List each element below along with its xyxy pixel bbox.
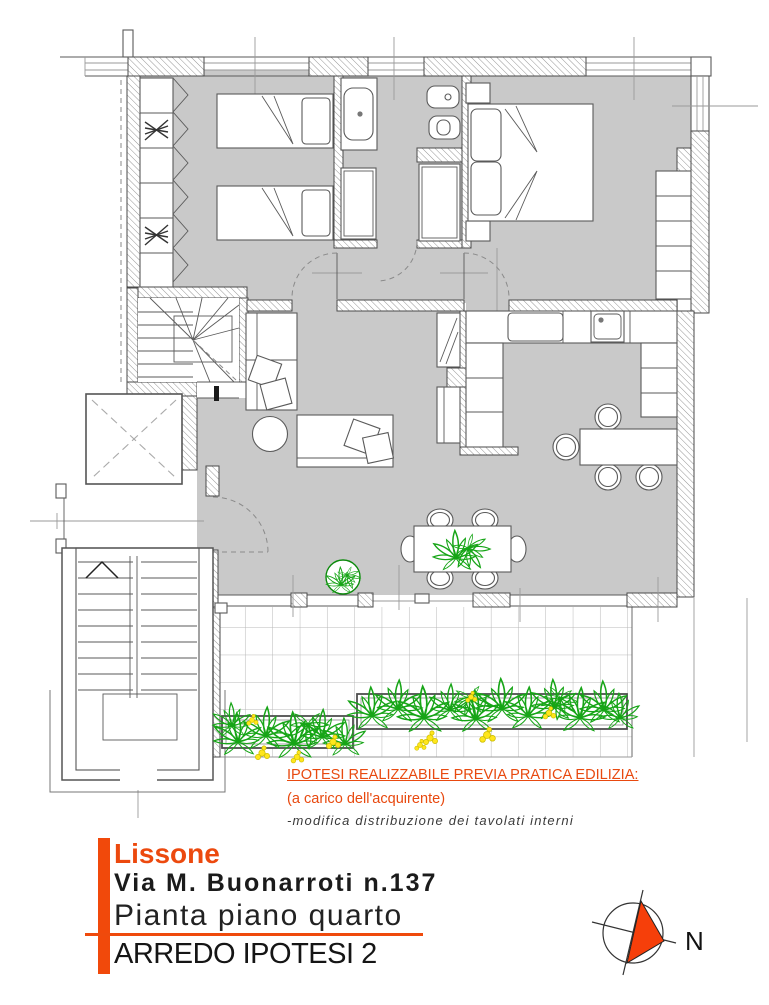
- nightstand: [466, 221, 490, 241]
- stairwell-opening: [120, 766, 157, 782]
- pillow: [302, 98, 330, 144]
- single-bed-1: [217, 94, 333, 148]
- toilet: [429, 116, 460, 139]
- section-mark: [214, 386, 219, 401]
- chimney-stub: [123, 30, 133, 57]
- single-bed-2: [217, 186, 333, 240]
- floor-plan-page: IPOTESI REALIZZABILE PREVIA PRATICA EDIL…: [0, 0, 769, 1005]
- window: [691, 76, 709, 133]
- pillow: [302, 190, 330, 236]
- sliding-door-leaf: [415, 594, 429, 603]
- pillow: [471, 162, 501, 215]
- north-wall: [60, 30, 711, 76]
- washbasin: [341, 78, 377, 150]
- title-city: Lissone: [114, 838, 220, 870]
- title-accent-bar: [98, 838, 110, 974]
- cushion: [363, 433, 394, 464]
- annotation-line-1: IPOTESI REALIZZABILE PREVIA PRATICA EDIL…: [287, 766, 638, 783]
- shower: [341, 168, 376, 239]
- kitchen-table: [580, 429, 677, 465]
- round-side-table: [253, 417, 288, 452]
- elevator-shaft: [86, 394, 182, 484]
- title-plan-name: Pianta piano quarto: [114, 899, 403, 933]
- title-underline: [85, 933, 423, 936]
- floor-plan-drawing: [0, 0, 769, 835]
- master-wardrobe: [656, 171, 691, 299]
- cooktop: [508, 313, 563, 341]
- annotation-line-3: -modifica distribuzione dei tavolati int…: [287, 813, 574, 828]
- title-address: Via M. Buonarroti n.137: [114, 869, 437, 898]
- daybed: [297, 415, 393, 467]
- double-bed: [468, 104, 593, 221]
- north-label: N: [685, 926, 704, 956]
- shower-box: [419, 164, 460, 241]
- kitchen-counter-left: [466, 343, 503, 447]
- kitchen-counter-right: [641, 343, 677, 417]
- bidet: [427, 86, 459, 108]
- annotation-line-2: (a carico dell'acquirente): [287, 790, 445, 807]
- pillow: [471, 109, 501, 161]
- nightstand: [466, 83, 490, 103]
- north-compass: N: [585, 878, 715, 993]
- title-variant: ARREDO IPOTESI 2: [114, 938, 377, 971]
- kitchen-sink: [591, 311, 624, 342]
- sofa: [246, 313, 297, 410]
- kitchen-counter-top: [466, 311, 677, 343]
- landing: [56, 484, 204, 553]
- common-stairwell: [50, 548, 225, 792]
- east-wall: [677, 76, 709, 597]
